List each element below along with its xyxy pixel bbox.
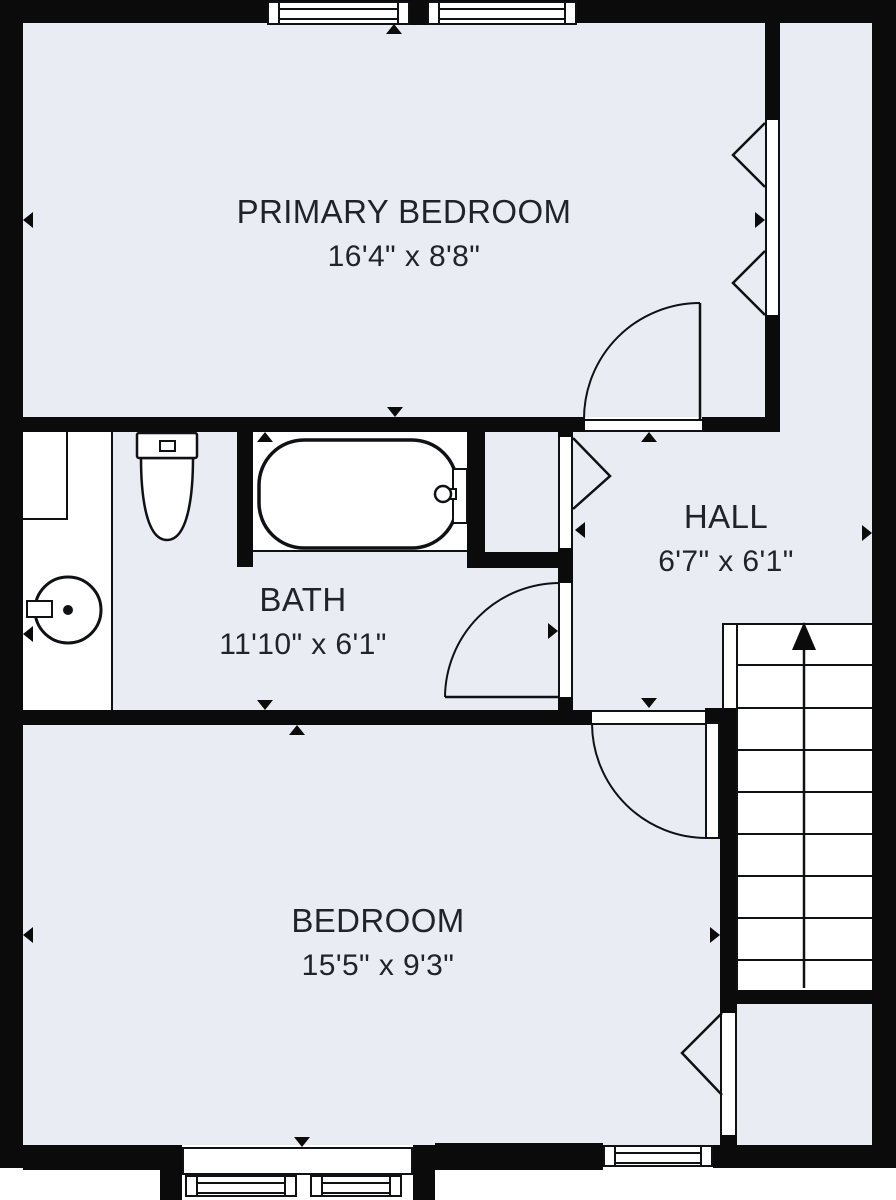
wall-top-window-mullion <box>410 0 427 25</box>
wall-bath-hall-b <box>558 548 573 583</box>
window-cap <box>438 3 440 23</box>
window-cap <box>196 1177 198 1195</box>
room-name: BEDROOM <box>291 898 464 943</box>
label-bedroom: BEDROOM 15'5" x 9'3" <box>291 898 464 988</box>
passage-opening-primary-strip <box>765 120 780 315</box>
window-top-left <box>267 1 410 25</box>
wall-stair-left <box>720 725 737 1013</box>
floor-stair-landing <box>737 1003 872 1145</box>
window-cap <box>389 1177 391 1195</box>
door-opening-hall-bedroom <box>592 710 705 725</box>
bay-window-side-right <box>413 1145 435 1200</box>
room-dimensions: 6'7" x 6'1" <box>658 539 794 584</box>
floor-bath-under-tub <box>253 552 467 567</box>
window-pane-lines <box>196 1182 286 1194</box>
wall-primary-strip-lower <box>765 315 780 432</box>
bay-window-right <box>310 1175 402 1197</box>
floor-hall-lower <box>573 623 722 710</box>
wall-primary-bath <box>23 417 585 432</box>
room-name: BATH <box>219 577 387 622</box>
bay-window-side-left <box>160 1168 182 1200</box>
window-pane-lines <box>278 8 399 20</box>
window-bottom-right <box>603 1145 713 1167</box>
bath-vanity-zone <box>23 432 112 710</box>
room-name: PRIMARY BEDROOM <box>237 189 572 234</box>
window-cap <box>284 1177 286 1195</box>
room-dimensions: 16'4" x 8'8" <box>237 234 572 279</box>
label-bath: BATH 11'10" x 6'1" <box>219 577 387 667</box>
window-cap <box>564 3 566 23</box>
window-pane-lines <box>614 1152 702 1164</box>
window-cap <box>321 1177 323 1195</box>
tub-alcove <box>253 432 467 552</box>
floor-upper-landing-strip <box>780 23 872 432</box>
room-dimensions: 15'5" x 9'3" <box>291 943 464 988</box>
floor-tub-nook <box>485 432 558 553</box>
label-primary-bedroom: PRIMARY BEDROOM 16'4" x 8'8" <box>237 189 572 279</box>
bay-window-box <box>182 1147 413 1175</box>
wall-exterior-right <box>872 0 896 1168</box>
wall-bath-bedroom <box>23 710 592 725</box>
label-hall: HALL 6'7" x 6'1" <box>658 494 794 584</box>
wall-exterior-bottom-left <box>23 1145 182 1170</box>
wall-exterior-left <box>0 0 23 1168</box>
wall-stair-bottom <box>722 990 872 1004</box>
room-name: HALL <box>658 494 794 539</box>
wall-exterior-bottom-right <box>713 1145 896 1168</box>
window-pane-lines <box>438 8 566 20</box>
wall-toilet-tub-divider <box>237 432 253 567</box>
door-opening-hall-bath <box>558 583 573 697</box>
room-dimensions: 11'10" x 6'1" <box>219 622 387 667</box>
window-cap <box>278 3 280 23</box>
wall-primary-strip-upper <box>765 23 780 120</box>
window-cap <box>614 1147 616 1165</box>
window-cap <box>397 3 399 23</box>
wall-hall-bedroom-corner <box>705 708 737 725</box>
passage-opening-hall-nook <box>558 437 573 548</box>
floor-bath-left <box>112 432 237 710</box>
wall-tub-right <box>467 432 485 567</box>
passage-opening-bedroom-landing <box>720 1013 737 1135</box>
staircase-zone <box>722 623 872 991</box>
window-cap <box>700 1147 702 1165</box>
bay-window-left <box>185 1175 297 1197</box>
door-opening-primary-hall <box>585 419 702 432</box>
window-top-right <box>427 1 577 25</box>
wall-exterior-bottom-mid <box>435 1143 603 1170</box>
window-pane-lines <box>321 1182 391 1194</box>
floor-plan: PRIMARY BEDROOM 16'4" x 8'8" BATH 11'10"… <box>0 0 896 1200</box>
